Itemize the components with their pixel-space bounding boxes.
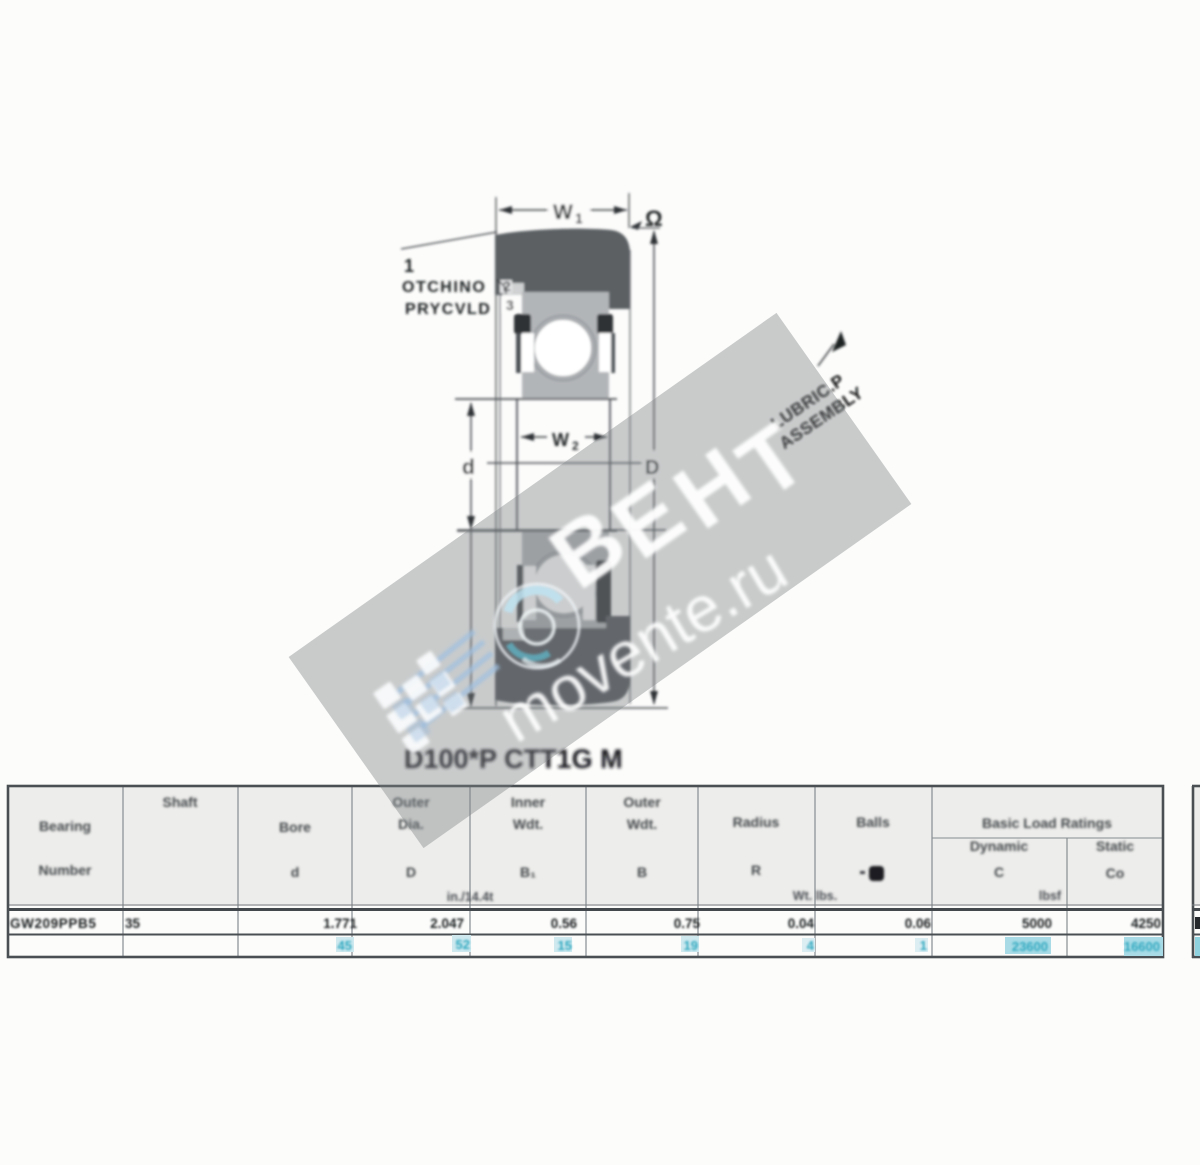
svg-text:0.56: 0.56 xyxy=(551,916,578,931)
svg-text:Balls: Balls xyxy=(856,814,890,830)
svg-text:in./14.4t: in./14.4t xyxy=(447,890,494,904)
svg-text:Co: Co xyxy=(1106,865,1125,881)
svg-text:52: 52 xyxy=(456,937,470,952)
svg-text:W: W xyxy=(553,201,573,224)
svg-text:B: B xyxy=(637,864,647,880)
svg-text:Static: Static xyxy=(1096,838,1134,854)
svg-text:19: 19 xyxy=(684,938,698,953)
svg-text:Number: Number xyxy=(39,862,92,878)
svg-text:Outer: Outer xyxy=(623,794,661,810)
svg-text:Wdt.: Wdt. xyxy=(513,816,543,832)
svg-text:4250: 4250 xyxy=(1131,916,1161,931)
svg-text:2.047: 2.047 xyxy=(430,916,464,931)
svg-text:Inner: Inner xyxy=(511,794,546,810)
svg-text:Bearing: Bearing xyxy=(39,818,91,834)
svg-text:Bore: Bore xyxy=(279,819,311,835)
svg-text:d: d xyxy=(291,864,300,880)
svg-text:Wdt.: Wdt. xyxy=(627,816,657,832)
svg-text:1: 1 xyxy=(920,938,927,953)
svg-text:1: 1 xyxy=(575,210,583,226)
svg-text:5000: 5000 xyxy=(1022,916,1052,931)
svg-text:OTCHINO: OTCHINO xyxy=(402,279,486,296)
svg-text:23600: 23600 xyxy=(1012,939,1048,954)
svg-text:Basic Load Ratings: Basic Load Ratings xyxy=(982,815,1112,831)
svg-text:15: 15 xyxy=(558,938,572,953)
svg-text:2: 2 xyxy=(572,439,579,453)
svg-text:C: C xyxy=(994,864,1004,880)
svg-text:R: R xyxy=(751,862,761,878)
svg-text:0.04: 0.04 xyxy=(788,916,815,931)
svg-text:Shaft: Shaft xyxy=(163,794,198,810)
svg-text:Dynamic: Dynamic xyxy=(970,838,1029,854)
svg-text:45: 45 xyxy=(338,938,352,953)
svg-text:1: 1 xyxy=(404,256,414,276)
svg-text:D: D xyxy=(406,864,416,880)
svg-text:lbsf: lbsf xyxy=(1039,889,1062,903)
svg-text:35: 35 xyxy=(125,916,141,931)
svg-text:0.75: 0.75 xyxy=(674,916,701,931)
svg-text:Radius: Radius xyxy=(733,814,780,830)
svg-text:4: 4 xyxy=(807,938,815,953)
svg-text:PRYCVLD: PRYCVLD xyxy=(405,301,491,318)
svg-text:0.06: 0.06 xyxy=(905,916,932,931)
svg-text:16600: 16600 xyxy=(1124,939,1160,954)
svg-text:B₁: B₁ xyxy=(520,864,536,880)
svg-text:3: 3 xyxy=(506,297,514,313)
svg-text:GW209PPB5: GW209PPB5 xyxy=(10,916,96,931)
svg-text:d: d xyxy=(462,456,475,479)
svg-text:1.771: 1.771 xyxy=(323,916,357,931)
svg-text:Ω: Ω xyxy=(645,206,663,231)
svg-text:Wt. lbs.: Wt. lbs. xyxy=(793,889,837,903)
svg-text:W: W xyxy=(552,430,569,450)
